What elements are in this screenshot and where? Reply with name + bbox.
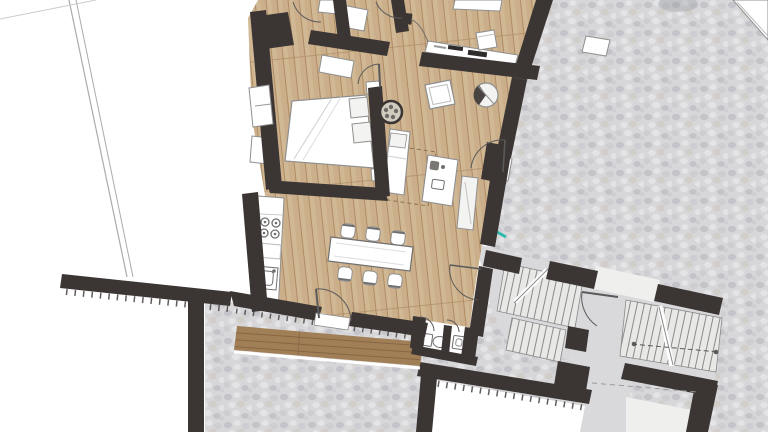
ornament-petal: [391, 115, 395, 119]
faucet: [272, 269, 276, 273]
office-chair: [476, 30, 497, 50]
round-bowl: [474, 83, 498, 107]
ornament-petal: [385, 114, 389, 118]
stone-block: [582, 36, 610, 56]
neighbor-wall-vertical: [188, 301, 204, 432]
dining-chair-4: [337, 266, 353, 282]
pillow-2: [352, 122, 372, 143]
wall-top-pier: [259, 12, 294, 49]
desk-gadget: [429, 160, 439, 170]
dining-chair-1: [340, 223, 356, 239]
dining-chair-6: [387, 273, 403, 289]
desk-dot-item: [441, 165, 445, 169]
dining-chair-5: [362, 270, 378, 286]
walking-line-start-dot: [632, 342, 637, 347]
picture-frame: [425, 80, 455, 109]
walking-line-end-dot: [714, 350, 719, 355]
chaise-pillow: [389, 133, 407, 148]
ornament-petal: [394, 109, 398, 113]
office-wall-table: [453, 0, 502, 11]
floor-plan-svg: [0, 0, 768, 432]
double-bed: [285, 95, 374, 168]
window-left: [249, 85, 273, 127]
dining-chair-2: [365, 226, 381, 242]
dining-chair-3: [390, 230, 406, 246]
ornament-petal: [389, 105, 393, 109]
side-desk: [422, 155, 458, 206]
pillow-1: [349, 97, 369, 118]
round-ornament-table: [380, 101, 402, 123]
floor-plan-stage: [0, 0, 768, 432]
stair-wall-mid-small: [565, 326, 589, 352]
ornament-petal: [384, 108, 388, 112]
